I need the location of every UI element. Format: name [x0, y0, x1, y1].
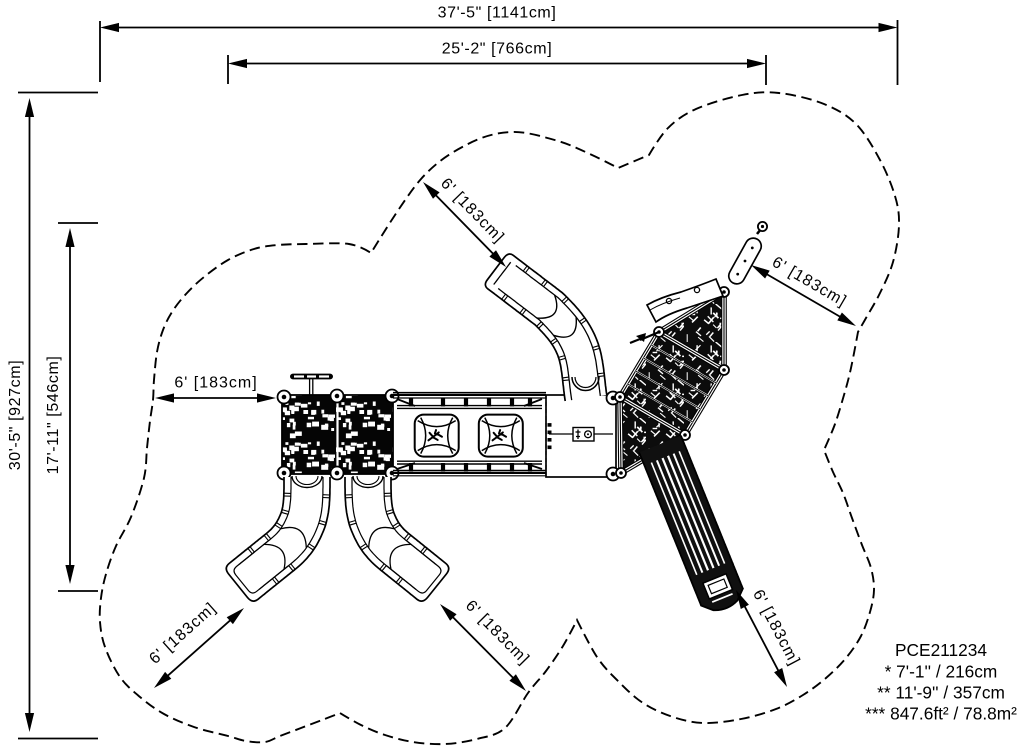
svg-text:PCE211234: PCE211234 [895, 640, 987, 660]
svg-text:17'-11" [546cm]: 17'-11" [546cm] [45, 356, 62, 475]
svg-text:** 11'-9'' / 357cm: ** 11'-9'' / 357cm [877, 683, 1005, 703]
svg-text:37'-5" [1141cm]: 37'-5" [1141cm] [438, 5, 557, 22]
svg-text:* 7'-1'' / 216cm: * 7'-1'' / 216cm [885, 662, 998, 682]
svg-text:6' [183cm]: 6' [183cm] [146, 600, 219, 668]
svg-text:30'-5" [927cm]: 30'-5" [927cm] [7, 360, 24, 471]
svg-text:6' [183cm]: 6' [183cm] [749, 587, 803, 669]
svg-text:*** 847.6ft² / 78.8m²: *** 847.6ft² / 78.8m² [865, 704, 1017, 724]
svg-text:25'-2" [766cm]: 25'-2" [766cm] [442, 41, 553, 58]
svg-text:6' [183cm]: 6' [183cm] [174, 375, 257, 392]
svg-text:6' [183cm]: 6' [183cm] [462, 597, 533, 668]
svg-text:6' [183cm]: 6' [183cm] [437, 175, 507, 246]
